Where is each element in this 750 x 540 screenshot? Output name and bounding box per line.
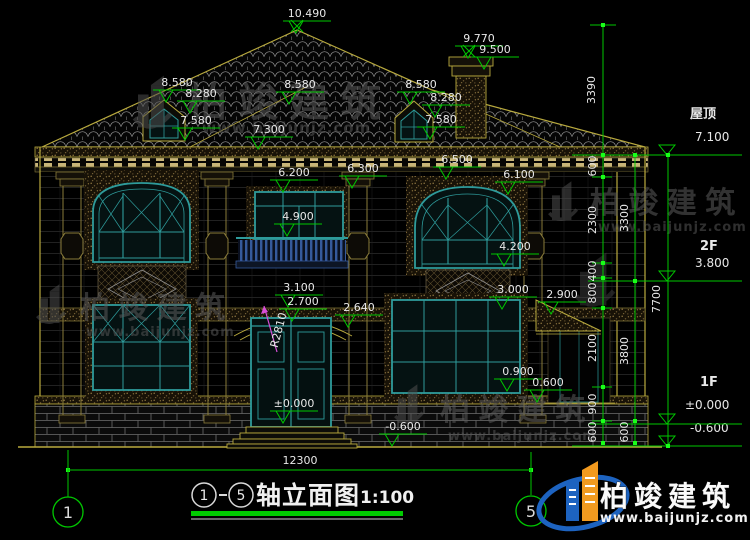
- elevation-label: 4.200: [499, 240, 531, 253]
- dim-value: 7700: [650, 285, 663, 313]
- dim-value: 2300: [586, 206, 599, 234]
- elevation-label: ±0.000: [274, 397, 315, 410]
- elevation-label: 6.200: [278, 166, 310, 179]
- logo: 柏竣建筑 www.baijunjz.com: [534, 461, 749, 537]
- grip-dot: [601, 175, 605, 179]
- grip-dot: [601, 23, 605, 27]
- elevation-label: -0.600: [385, 420, 420, 433]
- balcony: [236, 238, 348, 268]
- grip-dot: [601, 306, 605, 310]
- dim-value: 600: [618, 422, 631, 443]
- grip-dot: [601, 419, 605, 423]
- dim-value: 3800: [618, 337, 631, 365]
- dim-value: 3300: [618, 204, 631, 232]
- watermark-text: 柏竣建筑: [80, 291, 234, 326]
- elevation-label: 0.600: [532, 376, 564, 389]
- elevation-label: 7.300: [253, 123, 285, 136]
- logo-building-blue: [566, 477, 579, 521]
- elevation-label: 2.700: [287, 295, 319, 308]
- elevation-label: 6.500: [441, 153, 473, 166]
- level-name: 屋顶: [690, 107, 716, 122]
- elevation-label: 6.100: [503, 168, 535, 181]
- grip-dot: [666, 153, 670, 157]
- elevation-label: 0.900: [502, 365, 534, 378]
- elevation-label: 8.280: [430, 91, 462, 104]
- drawing-title: 1 5 轴立面图 1:100: [191, 481, 414, 519]
- elevation-label: 7.580: [425, 113, 457, 126]
- dim-value: 400: [586, 261, 599, 282]
- title-underline: [191, 511, 403, 516]
- level-elevation: 3.800: [695, 256, 729, 270]
- dim-value: 2100: [586, 334, 599, 362]
- grip-dot: [633, 153, 637, 157]
- title-text: 轴立面图: [256, 481, 360, 510]
- axis-label-5: 5: [526, 502, 536, 521]
- watermark-url: www.baijunjz.com: [448, 429, 597, 444]
- grip-dot: [601, 441, 605, 445]
- window-2f-left: [84, 170, 199, 270]
- entry-steps: [227, 427, 357, 448]
- elevation-label: 8.280: [185, 87, 217, 100]
- axis-label-1: 1: [63, 503, 73, 522]
- grip-dot: [601, 261, 605, 265]
- grip-dot: [666, 444, 670, 448]
- elevation-label: 3.100: [283, 281, 315, 294]
- elevation-drawing: 柏竣建筑www.baijunjz.com柏竣建筑www.baijunjz.com…: [0, 0, 750, 540]
- grip-dot: [633, 419, 637, 423]
- dim-value: 3390: [585, 76, 598, 104]
- level-name: 2F: [700, 239, 718, 254]
- elevation-label: 8.580: [405, 78, 437, 91]
- logo-building-orange: [582, 461, 598, 521]
- logo-name: 柏竣建筑: [600, 480, 736, 513]
- grip-dot: [601, 385, 605, 389]
- level-elevation: ±0.000: [685, 398, 729, 412]
- level-elevation: -0.600: [690, 421, 729, 435]
- level-triangle: [659, 271, 675, 281]
- elevation-label: 10.490: [288, 7, 327, 20]
- elevation-label: 8.580: [284, 78, 316, 91]
- dim-value-overall: 12300: [283, 454, 318, 467]
- dim-value: 600: [586, 156, 599, 177]
- window-1f-right: [384, 293, 528, 400]
- grip-dot: [601, 153, 605, 157]
- level-triangle: [659, 414, 675, 424]
- elevation-label: 3.000: [497, 283, 529, 296]
- dim-value: 900: [586, 394, 599, 415]
- grip-dot: [601, 276, 605, 280]
- elevation-label: 6.300: [347, 162, 379, 175]
- title-axis-from: 1: [200, 488, 209, 504]
- title-axis-to: 5: [237, 488, 246, 504]
- grip-dot: [633, 279, 637, 283]
- watermark-url: www.baijunjz.com: [86, 325, 235, 340]
- watermark-url: www.baijunjz.com: [202, 119, 371, 137]
- elevation-label: 2.900: [546, 288, 578, 301]
- elevation-label: 4.900: [282, 210, 314, 223]
- level-name: 1F: [700, 375, 718, 390]
- watermark-text: 柏竣建筑: [440, 393, 594, 428]
- elevation-label: 7.580: [180, 114, 212, 127]
- logo-url: www.baijunjz.com: [600, 511, 749, 526]
- elevation-label: 9.500: [479, 43, 511, 56]
- title-scale: 1:100: [360, 488, 414, 508]
- cornice: [35, 147, 648, 172]
- level-elevation: 7.100: [695, 130, 729, 144]
- watermark-text: 柏竣建筑: [590, 186, 744, 221]
- grip-dot: [633, 441, 637, 445]
- dim-value: 800: [586, 283, 599, 304]
- elevation-label: 2.640: [343, 301, 375, 314]
- dim-value: 600: [586, 422, 599, 443]
